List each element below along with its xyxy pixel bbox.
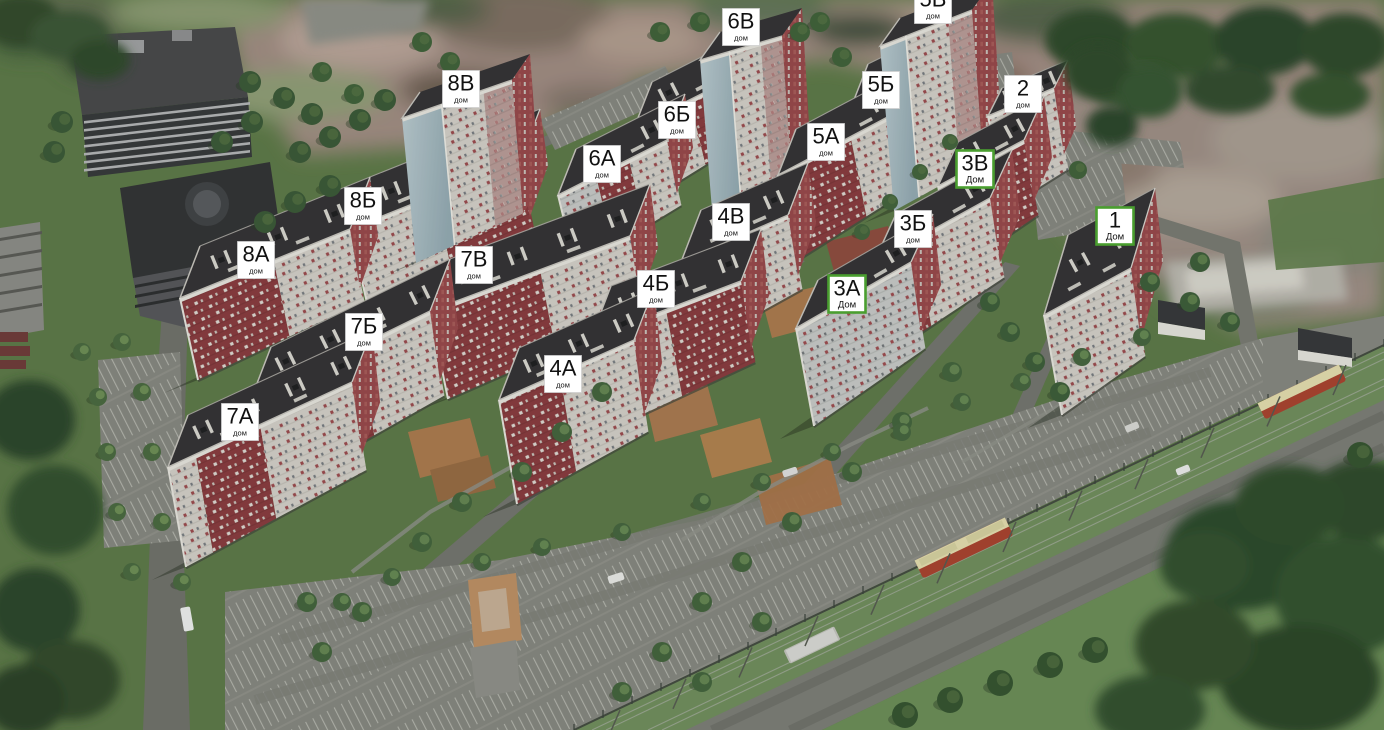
svg-text:5В: 5В xyxy=(920,0,947,12)
svg-text:Дом: Дом xyxy=(966,175,984,186)
svg-text:5А: 5А xyxy=(813,124,840,149)
svg-text:дом: дом xyxy=(724,229,738,238)
svg-text:дом: дом xyxy=(249,267,263,276)
svg-text:дом: дом xyxy=(233,429,247,438)
svg-text:дом: дом xyxy=(734,34,748,43)
svg-text:8А: 8А xyxy=(243,242,270,267)
svg-text:дом: дом xyxy=(819,149,833,158)
svg-text:2: 2 xyxy=(1017,76,1029,101)
svg-text:Дом: Дом xyxy=(838,300,856,311)
svg-text:8Б: 8Б xyxy=(350,188,377,213)
svg-text:дом: дом xyxy=(926,12,940,21)
svg-text:1: 1 xyxy=(1109,208,1121,233)
svg-text:дом: дом xyxy=(595,171,609,180)
svg-text:Дом: Дом xyxy=(1106,232,1124,243)
svg-text:6В: 6В xyxy=(728,9,755,34)
svg-text:6Б: 6Б xyxy=(664,102,691,127)
svg-text:3В: 3В xyxy=(962,151,989,176)
svg-text:дом: дом xyxy=(356,213,370,222)
svg-text:4А: 4А xyxy=(550,356,577,381)
svg-text:5Б: 5Б xyxy=(868,72,895,97)
svg-text:7А: 7А xyxy=(227,404,254,429)
svg-text:дом: дом xyxy=(454,96,468,105)
svg-text:дом: дом xyxy=(874,97,888,106)
svg-text:7Б: 7Б xyxy=(351,314,378,339)
svg-text:дом: дом xyxy=(1016,101,1030,110)
svg-text:дом: дом xyxy=(906,236,920,245)
svg-text:дом: дом xyxy=(670,127,684,136)
svg-text:7В: 7В xyxy=(461,247,488,272)
svg-text:дом: дом xyxy=(556,381,570,390)
svg-text:дом: дом xyxy=(357,339,371,348)
svg-text:3А: 3А xyxy=(834,276,861,301)
svg-text:6А: 6А xyxy=(589,146,616,171)
svg-text:3Б: 3Б xyxy=(900,211,927,236)
svg-text:4Б: 4Б xyxy=(643,271,670,296)
svg-text:8В: 8В xyxy=(448,71,475,96)
svg-text:4В: 4В xyxy=(718,204,745,229)
svg-text:дом: дом xyxy=(467,272,481,281)
svg-text:дом: дом xyxy=(649,296,663,305)
